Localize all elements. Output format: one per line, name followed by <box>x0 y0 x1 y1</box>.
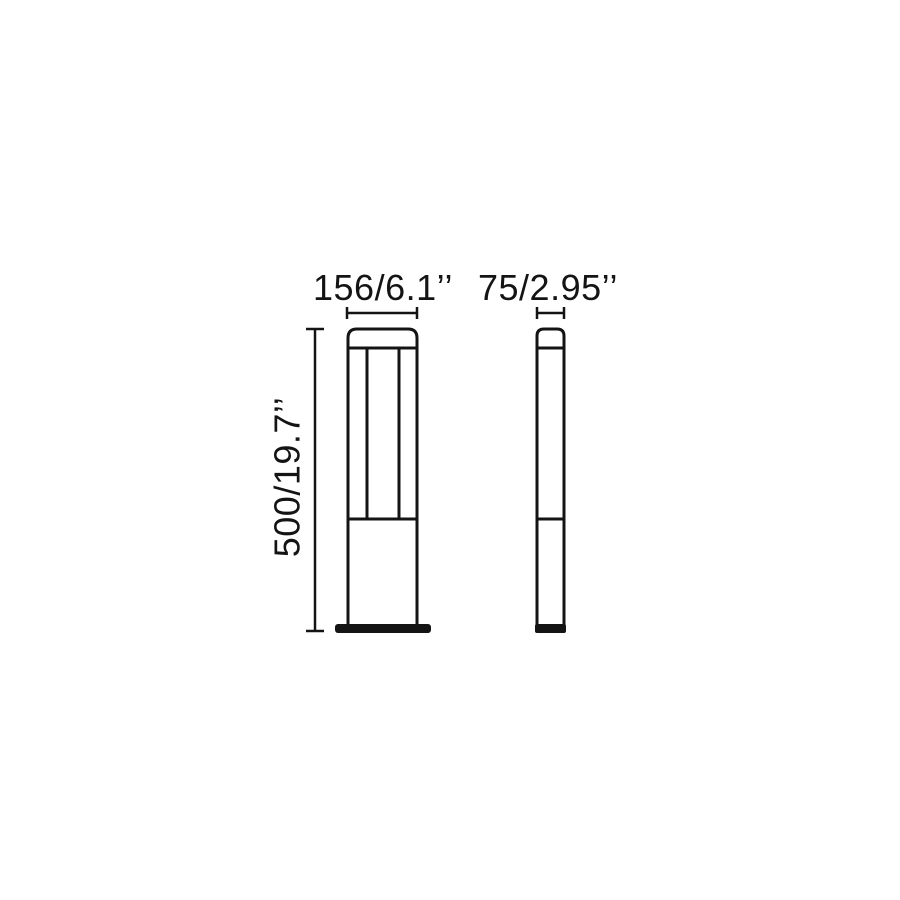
height-dimension-label: 500/19.7’’ <box>267 397 308 557</box>
front-width-dimension-label: 156/6.1’’ <box>313 267 453 308</box>
technical-drawing-canvas: 156/6.1’’ 75/2.95’’ 500/19.7’’ <box>0 0 900 900</box>
side-width-dimension-line <box>537 307 564 319</box>
front-width-dimension-line <box>347 307 417 319</box>
side-width-dimension-label: 75/2.95’’ <box>478 267 618 308</box>
technical-drawing-page: 156/6.1’’ 75/2.95’’ 500/19.7’’ <box>0 0 900 900</box>
bollard-side-view <box>535 329 566 633</box>
height-dimension-line <box>306 329 324 631</box>
side-base-plate <box>535 624 566 633</box>
front-base-plate <box>335 624 431 633</box>
side-body-outline <box>537 329 564 625</box>
bollard-front-view <box>335 329 431 633</box>
front-body-outline <box>348 329 417 625</box>
